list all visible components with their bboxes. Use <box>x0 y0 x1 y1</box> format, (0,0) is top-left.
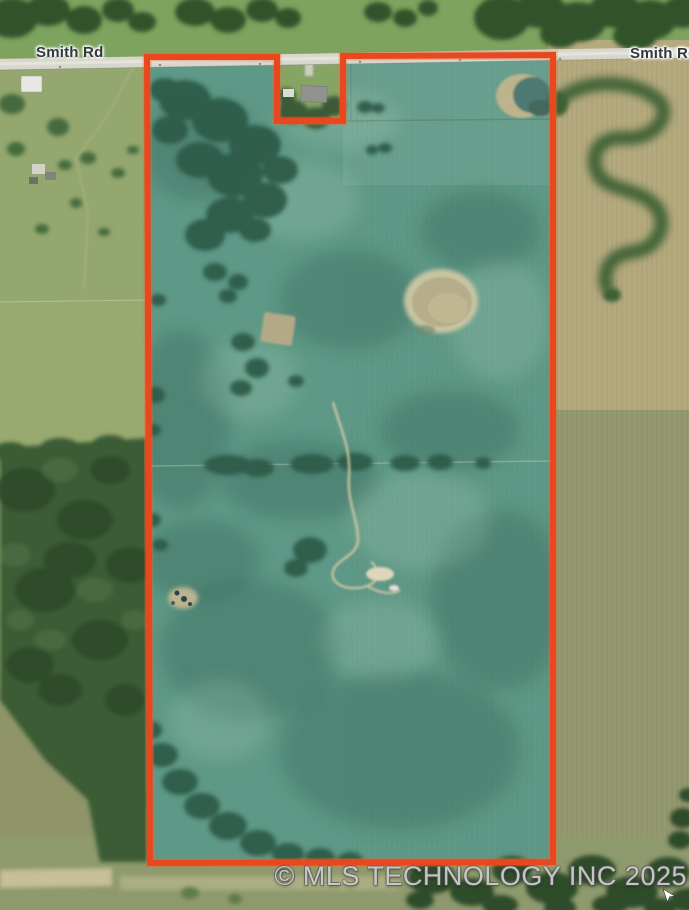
map-viewport: Smith Rd Smith Rd © MLS TECHNOLOGY INC 2… <box>0 0 689 910</box>
notch-house <box>301 86 328 103</box>
corral <box>168 587 198 609</box>
mls-watermark: © MLS TECHNOLOGY INC 2025 <box>274 861 687 892</box>
notch-shed <box>283 89 294 97</box>
satellite-imagery[interactable] <box>0 0 689 910</box>
bare-patch <box>260 312 296 346</box>
west-house <box>21 76 42 92</box>
road-label-smith-rd-left: Smith Rd <box>36 44 103 61</box>
road-label-smith-rd-right: Smith Rd <box>630 45 689 62</box>
